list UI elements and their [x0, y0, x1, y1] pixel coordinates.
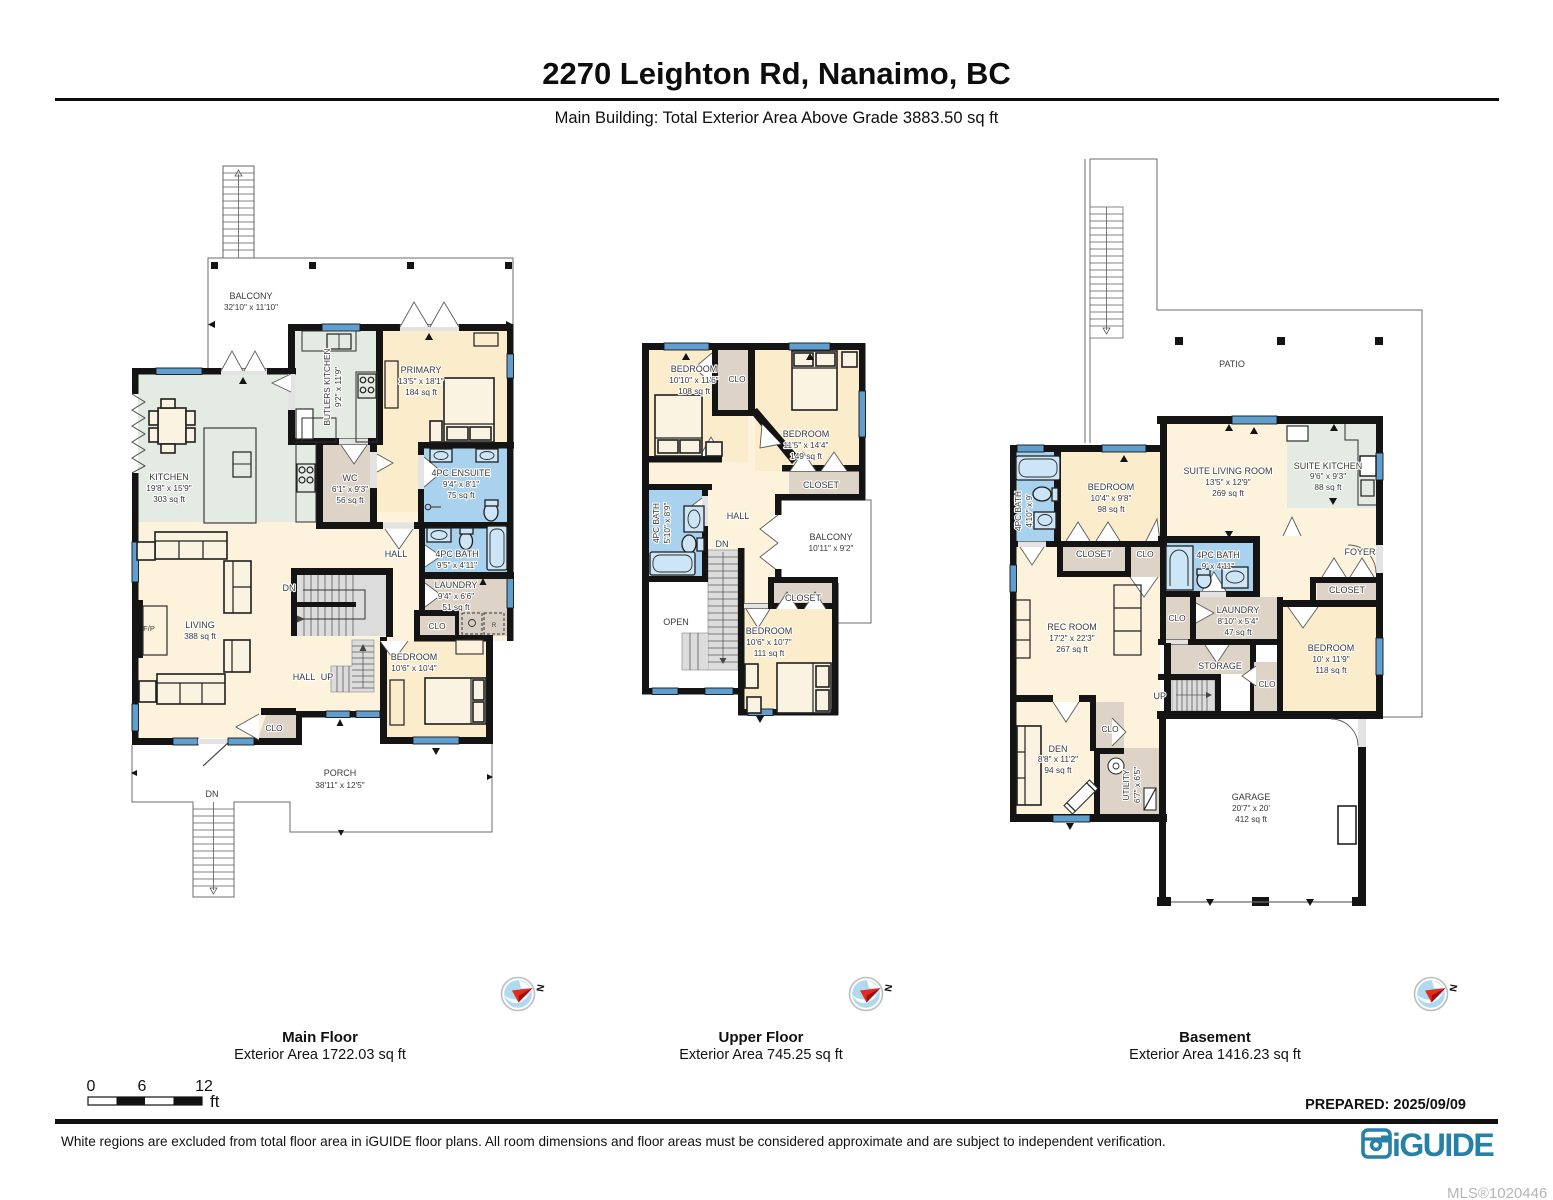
svg-text:BEDROOM: BEDROOM	[746, 626, 793, 636]
svg-text:108 sq ft: 108 sq ft	[678, 386, 711, 396]
svg-text:6'1" x 9'3": 6'1" x 9'3"	[332, 484, 368, 494]
svg-text:R: R	[492, 623, 497, 629]
svg-text:STORAGE: STORAGE	[1198, 661, 1242, 671]
svg-text:4PC BATH: 4PC BATH	[1013, 491, 1023, 531]
svg-text:9'6" x 9'3": 9'6" x 9'3"	[1310, 471, 1346, 481]
svg-text:303 sq ft: 303 sq ft	[153, 494, 186, 504]
svg-text:56 sq ft: 56 sq ft	[336, 495, 364, 505]
svg-text:UP: UP	[1153, 691, 1166, 701]
svg-text:118 sq ft: 118 sq ft	[1315, 665, 1347, 675]
svg-text:GARAGE: GARAGE	[1232, 792, 1271, 802]
svg-text:9'5" x 4'11": 9'5" x 4'11"	[437, 560, 477, 570]
svg-text:32'10" x 11'10": 32'10" x 11'10"	[224, 302, 278, 312]
svg-text:111 sq ft: 111 sq ft	[754, 648, 785, 658]
svg-text:9'4" x 8'1": 9'4" x 8'1"	[443, 479, 479, 489]
svg-text:17'2" x 22'3": 17'2" x 22'3"	[1049, 633, 1095, 643]
svg-text:4PC BATH: 4PC BATH	[651, 503, 661, 543]
svg-text:8'8" x 11'2": 8'8" x 11'2"	[1038, 754, 1078, 764]
svg-text:CLO: CLO	[1168, 613, 1186, 623]
svg-text:DEN: DEN	[1048, 744, 1067, 754]
svg-text:F/P: F/P	[143, 624, 155, 633]
svg-text:BUTLERS KITCHEN: BUTLERS KITCHEN	[322, 349, 332, 426]
svg-text:BEDROOM: BEDROOM	[1308, 643, 1355, 653]
svg-text:269 sq ft: 269 sq ft	[1212, 488, 1245, 498]
svg-text:CLO: CLO	[265, 723, 283, 733]
svg-text:DN: DN	[716, 539, 729, 549]
svg-text:CLO: CLO	[1101, 724, 1119, 734]
svg-text:8'10" x 5'4": 8'10" x 5'4"	[1218, 616, 1259, 626]
svg-text:PRIMARY: PRIMARY	[401, 365, 442, 375]
svg-text:388 sq ft: 388 sq ft	[184, 631, 217, 641]
svg-text:WC: WC	[343, 473, 358, 483]
svg-text:10'6" x 10'7": 10'6" x 10'7"	[746, 637, 792, 647]
svg-text:CLO: CLO	[728, 374, 746, 384]
svg-text:CLO: CLO	[428, 621, 446, 631]
svg-text:6'7" x 6'5": 6'7" x 6'5"	[1132, 767, 1142, 803]
svg-text:4'10" x 9': 4'10" x 9'	[1024, 494, 1034, 528]
svg-text:DN: DN	[206, 789, 219, 799]
svg-text:CLOSET: CLOSET	[803, 480, 840, 490]
svg-text:412 sq ft: 412 sq ft	[1235, 814, 1268, 824]
svg-text:HALL: HALL	[385, 549, 408, 559]
svg-text:11'5" x 14'4": 11'5" x 14'4"	[784, 440, 829, 450]
svg-text:UP: UP	[321, 672, 334, 682]
svg-text:SUITE LIVING ROOM: SUITE LIVING ROOM	[1183, 466, 1272, 476]
svg-text:PATIO: PATIO	[1219, 359, 1245, 369]
svg-text:94 sq ft: 94 sq ft	[1044, 765, 1072, 775]
svg-text:9'4" x 6'6": 9'4" x 6'6"	[438, 591, 474, 601]
svg-text:0: 0	[87, 1078, 96, 1095]
svg-text:FOYER: FOYER	[1344, 547, 1376, 557]
svg-text:iGUIDE: iGUIDE	[1392, 1127, 1494, 1163]
svg-text:9' x 4'11": 9' x 4'11"	[1202, 561, 1235, 571]
svg-text:BEDROOM: BEDROOM	[1088, 482, 1135, 492]
svg-text:4PC BATH: 4PC BATH	[1196, 550, 1239, 560]
svg-text:KITCHEN: KITCHEN	[149, 472, 189, 482]
svg-text:10'4" x 9'8": 10'4" x 9'8"	[1091, 493, 1132, 503]
svg-text:CLO: CLO	[1258, 679, 1276, 689]
svg-text:LAUNDRY: LAUNDRY	[1217, 605, 1260, 615]
svg-text:BEDROOM: BEDROOM	[391, 652, 438, 662]
svg-text:88 sq ft: 88 sq ft	[1314, 482, 1342, 492]
svg-text:267 sq ft: 267 sq ft	[1056, 644, 1089, 654]
svg-text:LIVING: LIVING	[185, 620, 215, 630]
svg-text:38'11" x 12'5": 38'11" x 12'5"	[315, 780, 365, 790]
svg-text:184 sq ft: 184 sq ft	[405, 387, 438, 397]
svg-text:9'2" x 11'9": 9'2" x 11'9"	[333, 367, 343, 407]
svg-text:51 sq ft: 51 sq ft	[442, 602, 470, 612]
svg-text:47 sq ft: 47 sq ft	[1224, 627, 1252, 637]
svg-text:UTILITY: UTILITY	[1121, 769, 1131, 800]
svg-text:19'8" x 15'9": 19'8" x 15'9"	[146, 483, 192, 493]
svg-text:CLO: CLO	[1136, 549, 1154, 559]
svg-text:CLOSET: CLOSET	[785, 593, 822, 603]
svg-text:PORCH: PORCH	[324, 768, 357, 778]
svg-text:4PC BATH: 4PC BATH	[435, 549, 478, 559]
svg-text:BALCONY: BALCONY	[229, 291, 272, 301]
svg-text:OPEN: OPEN	[663, 617, 689, 627]
svg-text:REC ROOM: REC ROOM	[1047, 622, 1097, 632]
svg-text:DN: DN	[283, 583, 296, 593]
svg-text:LAUNDRY: LAUNDRY	[435, 580, 478, 590]
svg-text:13'5" x 18'1": 13'5" x 18'1"	[398, 376, 444, 386]
svg-text:BALCONY: BALCONY	[809, 532, 852, 542]
svg-text:10' x 11'9": 10' x 11'9"	[1312, 654, 1349, 664]
svg-text:HALL: HALL	[727, 511, 750, 521]
svg-text:6: 6	[138, 1078, 147, 1095]
svg-text:149 sq ft: 149 sq ft	[790, 451, 823, 461]
svg-text:SUITE KITCHEN: SUITE KITCHEN	[1294, 461, 1363, 471]
svg-text:CLOSET: CLOSET	[1076, 549, 1113, 559]
svg-text:5'10" x 8'9": 5'10" x 8'9"	[662, 503, 672, 544]
svg-text:13'5" x 12'9": 13'5" x 12'9"	[1205, 477, 1251, 487]
svg-text:BEDROOM: BEDROOM	[783, 429, 830, 439]
svg-text:ft: ft	[210, 1092, 220, 1111]
svg-text:HALL: HALL	[293, 672, 316, 682]
svg-text:20'7" x 20': 20'7" x 20'	[1232, 803, 1270, 813]
svg-text:CLOSET: CLOSET	[1329, 585, 1366, 595]
svg-text:4PC ENSUITE: 4PC ENSUITE	[431, 468, 490, 478]
svg-text:10'6" x 10'4": 10'6" x 10'4"	[391, 663, 437, 673]
svg-text:98 sq ft: 98 sq ft	[1097, 504, 1125, 514]
svg-text:BEDROOM: BEDROOM	[671, 364, 718, 374]
svg-text:75 sq ft: 75 sq ft	[447, 490, 475, 500]
svg-text:10'11" x 9'2": 10'11" x 9'2"	[809, 543, 854, 553]
svg-text:10'10" x 11'6": 10'10" x 11'6"	[669, 375, 719, 385]
